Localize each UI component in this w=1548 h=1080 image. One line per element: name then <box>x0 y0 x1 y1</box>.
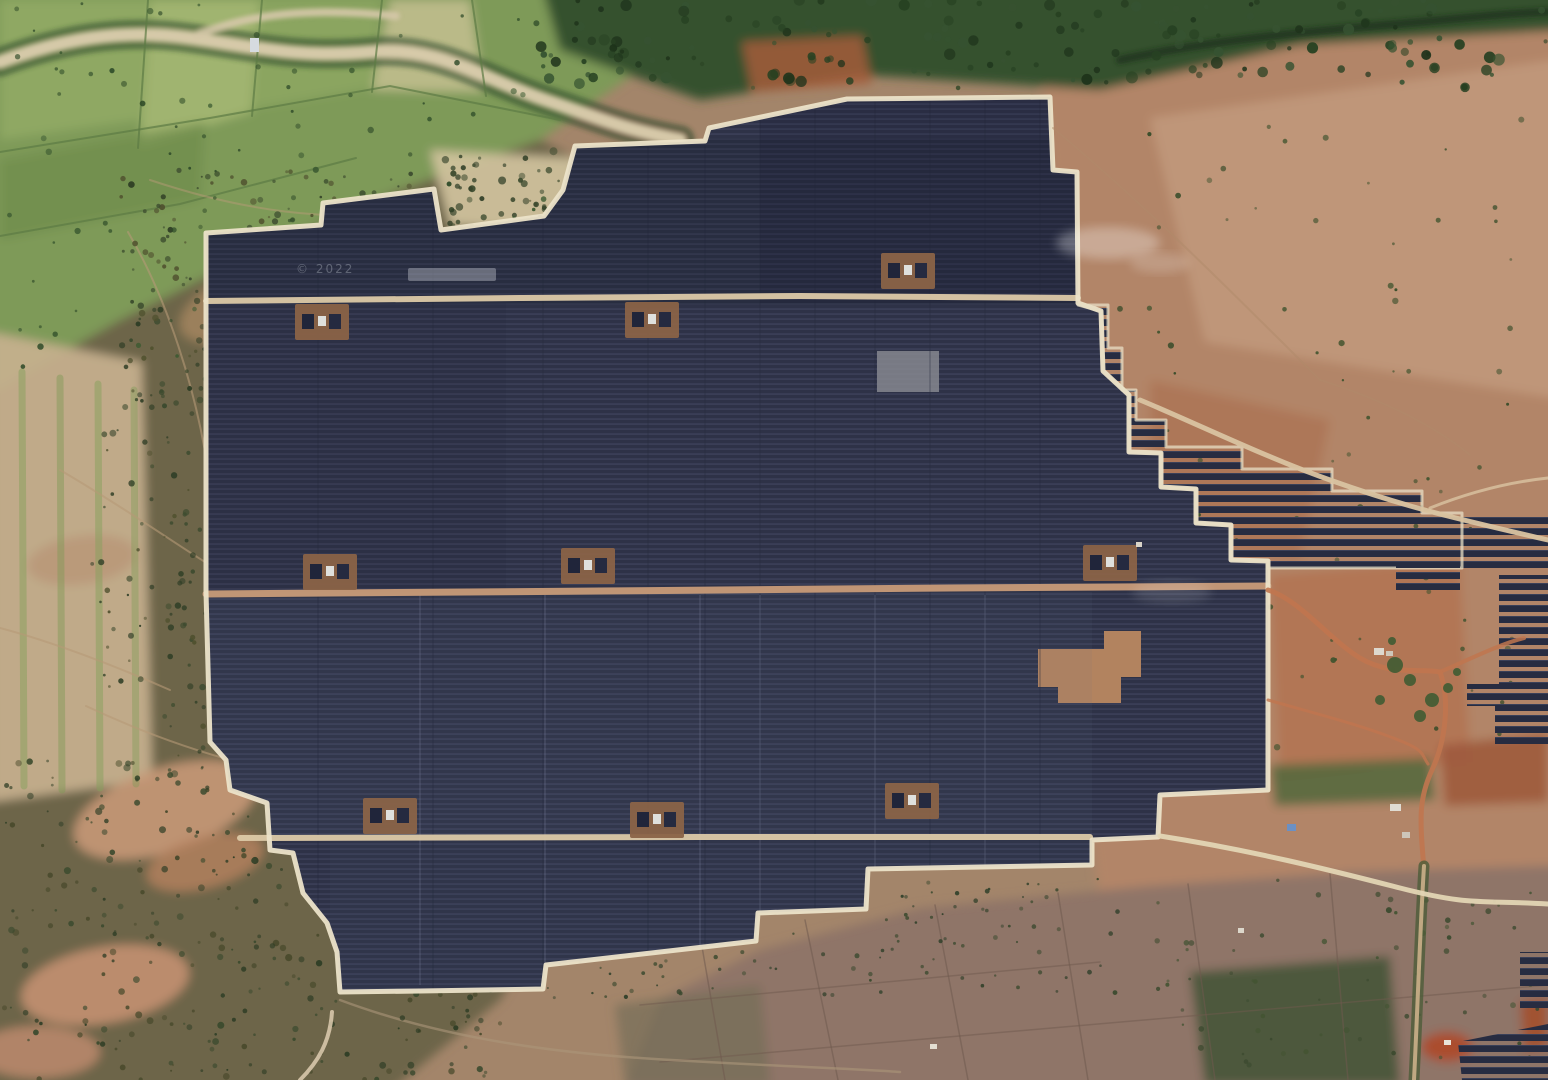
terrain-br-green-fields <box>1190 956 1400 1080</box>
building <box>1136 542 1142 547</box>
tree-clump <box>1375 695 1385 705</box>
tree-clump <box>1443 683 1453 693</box>
inverter-station <box>561 548 615 584</box>
crop-strip-3 <box>98 384 100 788</box>
building <box>1287 824 1296 831</box>
tree-clump <box>1453 668 1461 676</box>
building <box>1444 1040 1451 1045</box>
array-corner-strip <box>1520 952 1548 1010</box>
building <box>250 38 259 52</box>
inverter-station <box>885 783 939 819</box>
satellite-image <box>0 0 1548 1080</box>
building <box>1386 651 1393 656</box>
crop-strip-1 <box>22 372 24 786</box>
building <box>1238 928 1244 933</box>
crop-strip-4 <box>134 390 136 784</box>
block-tone-mid-left-tone <box>206 303 506 592</box>
cloud-wisp <box>1132 581 1212 603</box>
building <box>1390 804 1401 811</box>
array-se-bars-1 <box>1467 684 1548 706</box>
tree-clump <box>1425 693 1439 707</box>
inverter-station <box>295 304 349 340</box>
tree-clump <box>1414 710 1426 722</box>
cloud-wisp <box>1056 227 1160 259</box>
tree-clump <box>1387 657 1403 673</box>
inverter-station <box>625 302 679 338</box>
block-tone-lower-lighter <box>206 592 1092 837</box>
inverter-station <box>1083 545 1137 581</box>
satellite-view: © 2022 <box>0 0 1548 1080</box>
building <box>1402 832 1410 838</box>
light-structure <box>408 268 496 281</box>
building <box>930 1044 937 1049</box>
crop-strip-2 <box>60 378 62 790</box>
tree-clump <box>1388 637 1396 645</box>
tree-clump <box>1404 674 1416 686</box>
inverter-station <box>363 798 417 834</box>
inverter-station <box>881 253 935 289</box>
cloud-wisp <box>1130 253 1190 273</box>
inverter-station <box>303 554 357 590</box>
terrain-br-green-strip <box>1270 758 1435 806</box>
building <box>1374 648 1384 655</box>
inverter-station <box>630 802 684 838</box>
array-se-bars-2 <box>1495 706 1548 744</box>
array-ne-cluster <box>1396 566 1460 594</box>
